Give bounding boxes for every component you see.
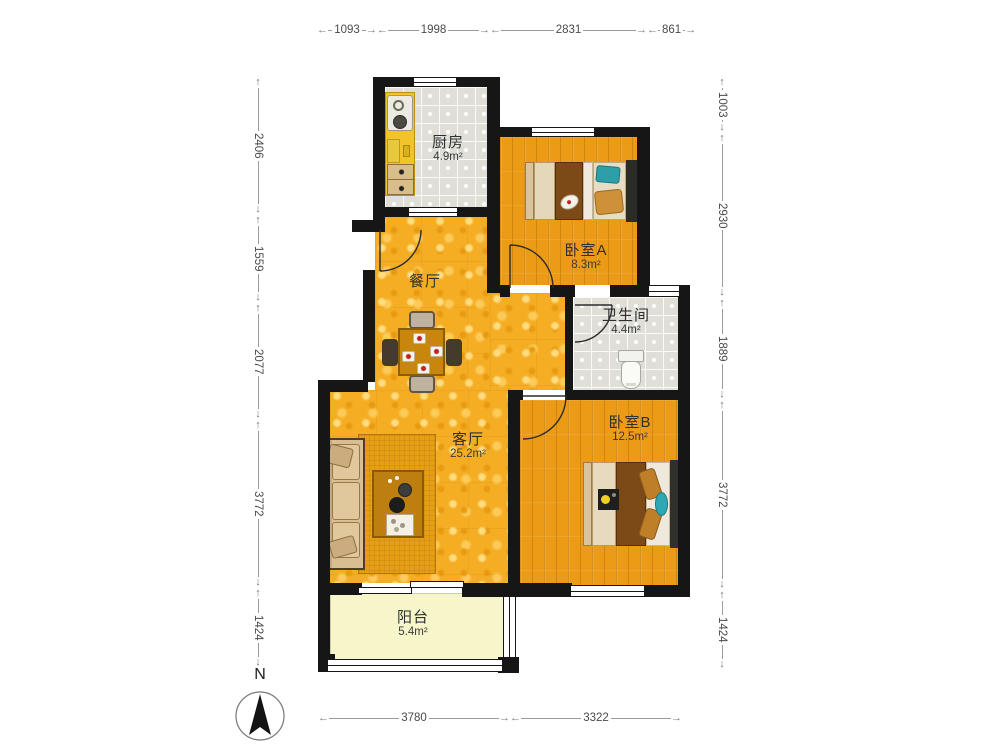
dim-top-3: ←2831→ [490,22,647,38]
dim-right-2: ↑2930↓ [714,133,730,298]
compass-north-label: N [248,666,272,684]
floor-plan-canvas: N 厨房4.9m² 卧室A8.3m² 卫生间4.4m² 卧室B12.5m² 餐厅… [0,0,1000,750]
dim-right-1: ↑1003↓ [714,77,730,133]
dim-top-2: ←1998→ [377,22,490,38]
dim-right-5: ↑1424↓ [714,590,730,670]
dim-left-3: ↑2077↓ [250,303,266,420]
bathroom-door-arc [575,305,612,342]
dim-right-4: ↑3772↓ [714,400,730,590]
dim-left-4: ↑3772↓ [250,420,266,588]
bedroom-a-door-arc [510,245,553,288]
dim-top-1: ←1093→ [317,22,377,38]
dim-bottom-1: ←3780→ [318,710,510,726]
dim-right-3: ↑1889↓ [714,298,730,400]
dim-left-2: ↑1559↓ [250,215,266,303]
dim-left-5: ↑1424↓ [250,588,266,668]
dim-left-1: ↑2406↓ [250,77,266,215]
door-swing-overlay [0,0,1000,750]
entry-door-arc [380,230,421,271]
bedroom-b-door-arc [523,396,566,439]
dim-bottom-2: ←3322→ [510,710,682,726]
dim-top-4: ←861→ [647,22,690,38]
